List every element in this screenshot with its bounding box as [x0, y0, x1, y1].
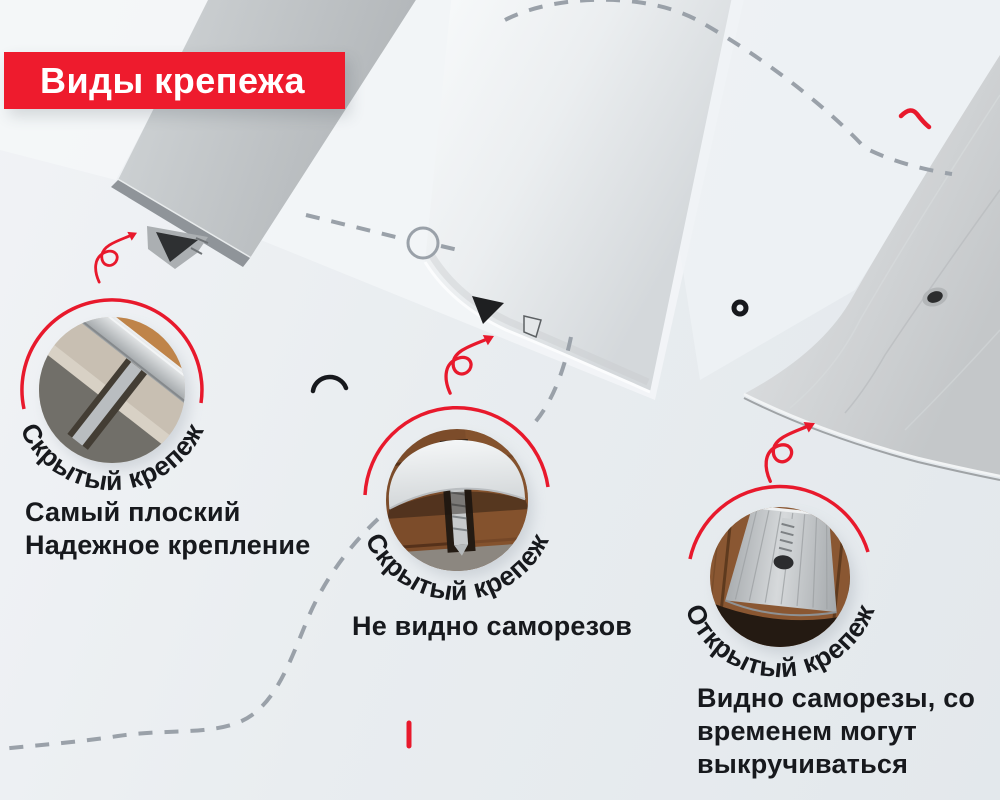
infographic-fastening-types: Скрытый крепеж Скрытый крепеж Открытый к…: [0, 0, 1000, 800]
description-line: выкручиваться: [697, 748, 975, 781]
spiral-arrow-icon-2: [446, 335, 494, 393]
description-line: Не видно саморезов: [352, 610, 632, 643]
profile-strip-dome: [425, 0, 733, 392]
scene-graphics: Скрытый крепеж Скрытый крепеж Открытый к…: [0, 0, 1000, 800]
description-t-profile: Самый плоский Надежное крепление: [25, 496, 310, 562]
arc-mark-icon: [313, 377, 346, 391]
description-line: Видно саморезы, со: [697, 682, 975, 715]
spiral-arrow-icon-1: [96, 232, 137, 282]
description-dome-profile: Не видно саморезов: [352, 610, 632, 643]
description-line: временем могут: [697, 715, 975, 748]
spiral-arrow-icon-3: [766, 422, 815, 481]
title-banner: Виды крепежа: [4, 52, 345, 109]
description-line: Надежное крепление: [25, 529, 310, 562]
description-line: Самый плоский: [25, 496, 310, 529]
description-flat-profile: Видно саморезы, со временем могут выкруч…: [697, 682, 975, 781]
page-title: Виды крепежа: [40, 60, 305, 101]
